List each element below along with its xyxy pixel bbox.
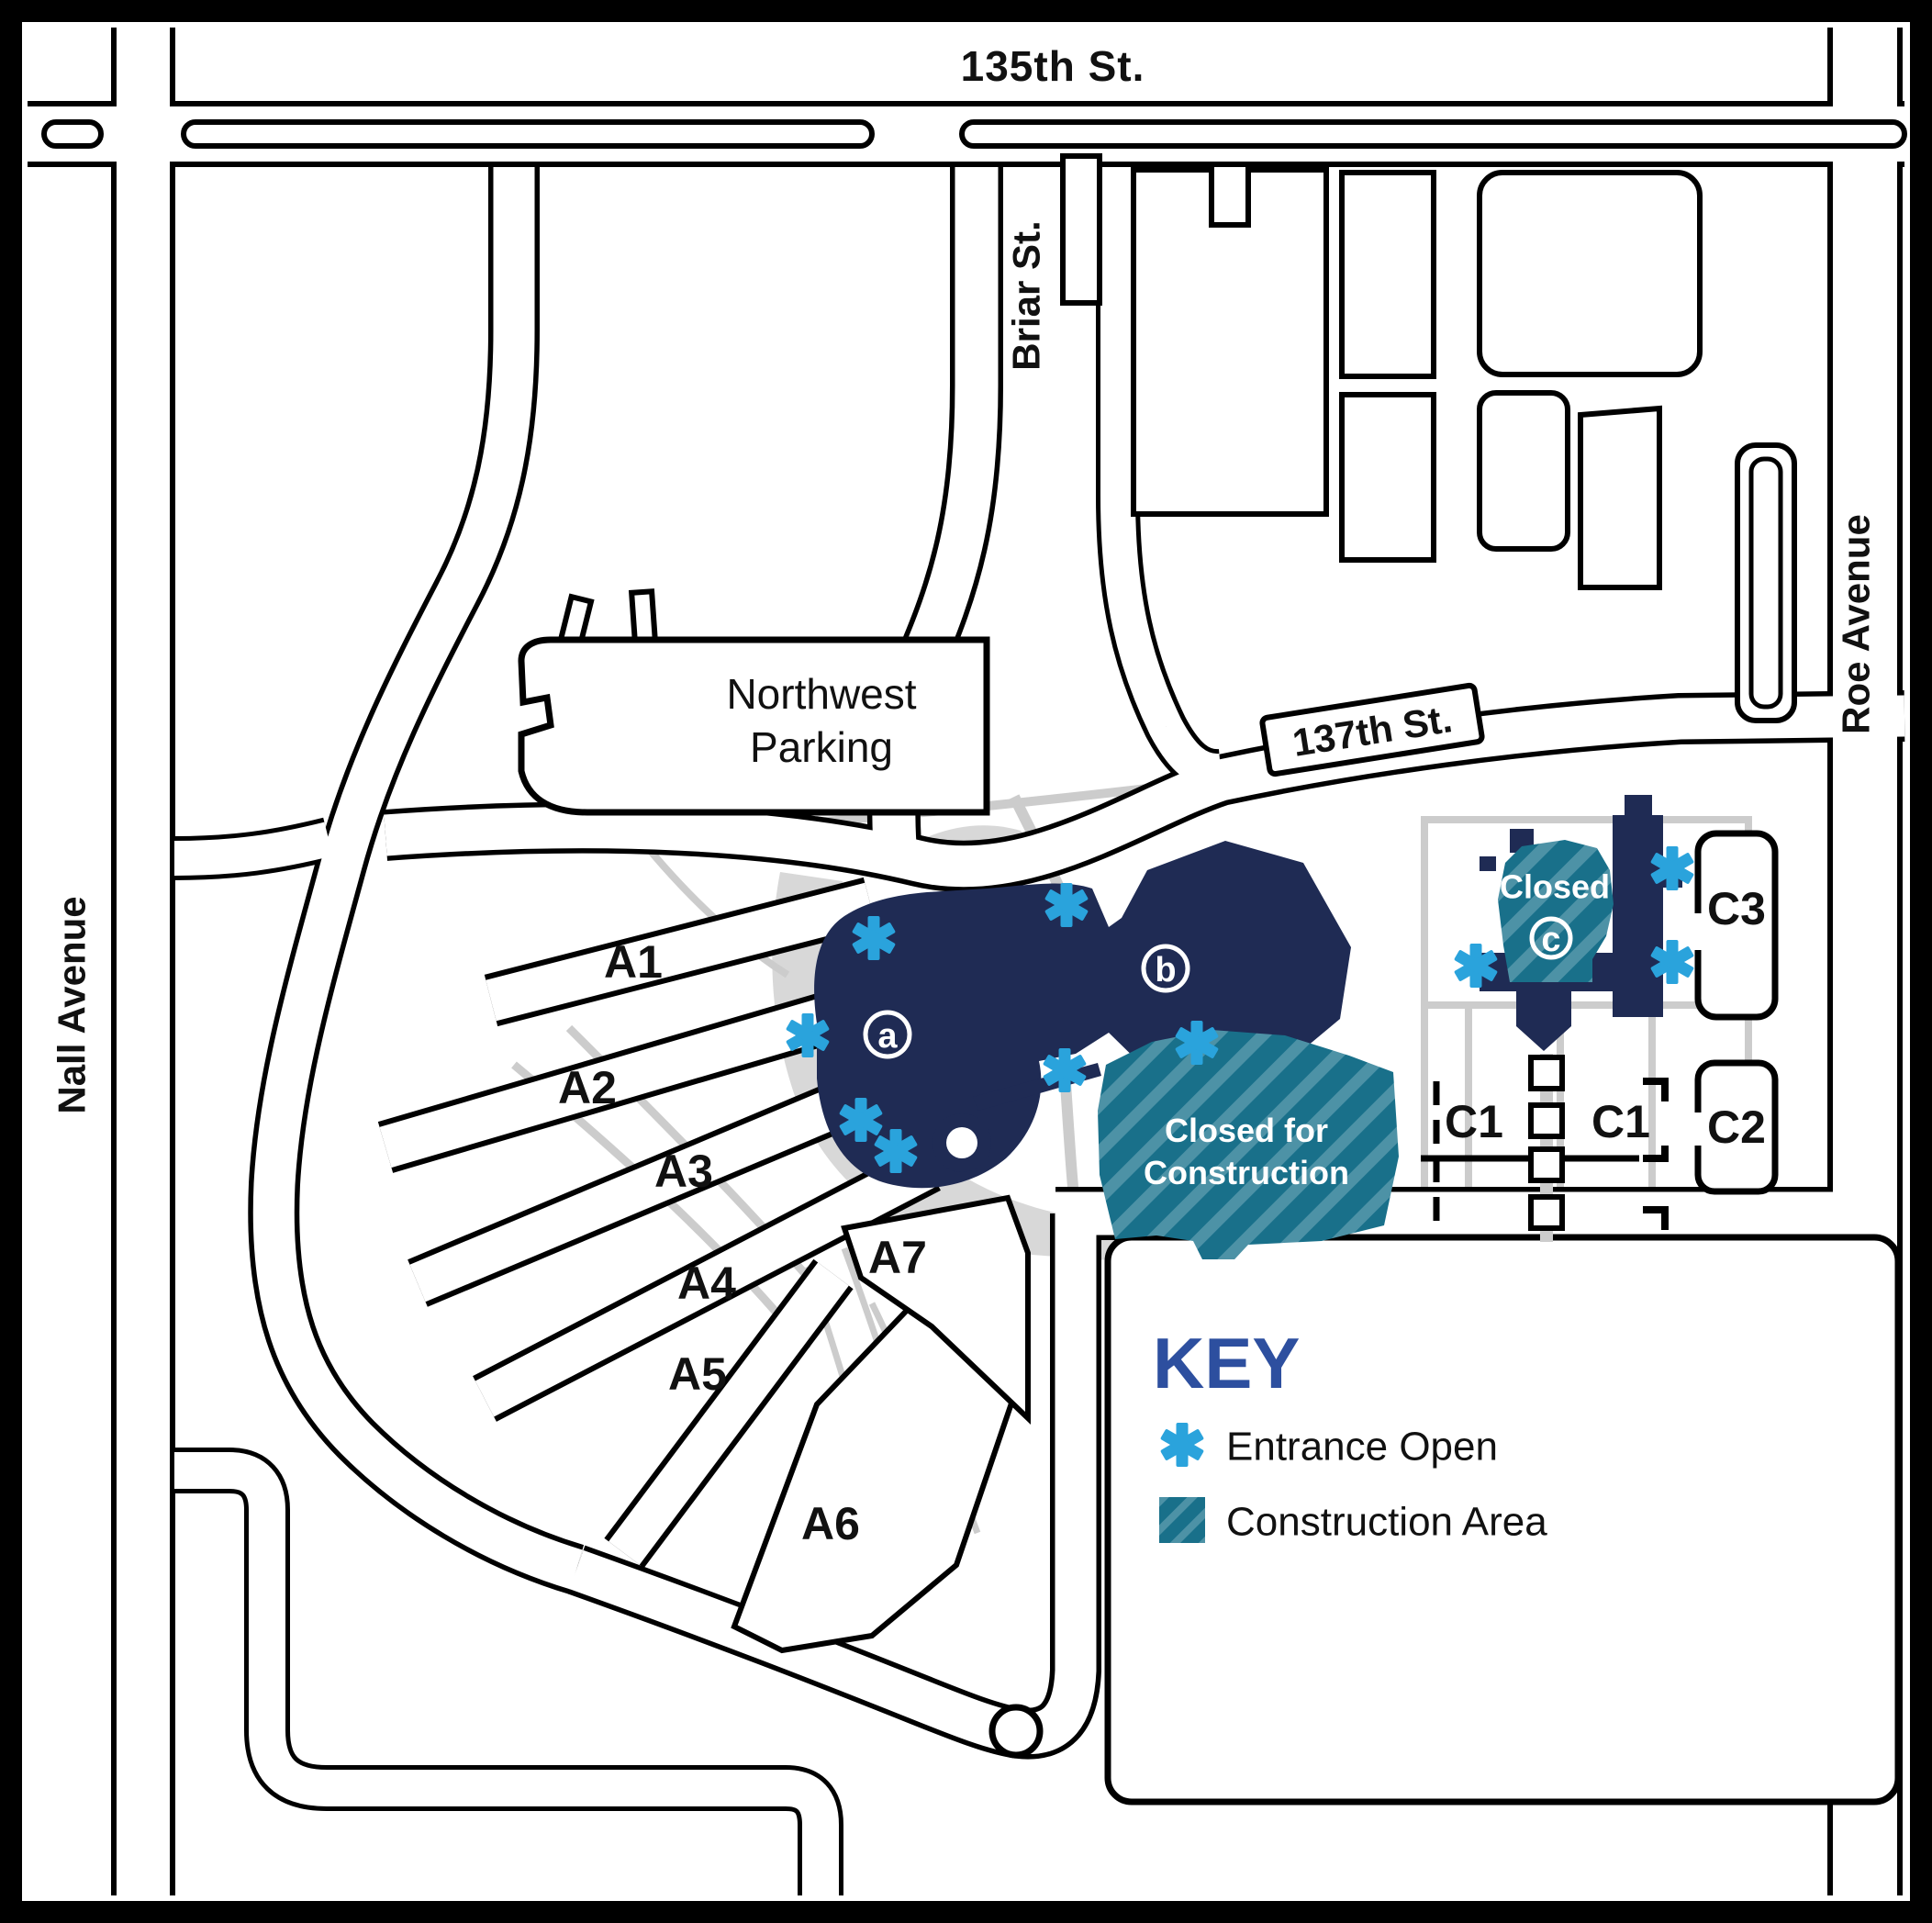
lot-c1-right-label: C1 [1591, 1096, 1650, 1147]
median-islands [44, 122, 1904, 146]
parcel-block-notched [1134, 170, 1326, 514]
building-c-letter: c [1541, 921, 1560, 959]
parcel-flag [1063, 156, 1100, 303]
lot-a2-label: A2 [558, 1062, 617, 1113]
lot-a3-label: A3 [654, 1146, 713, 1197]
legend-construction-label: Construction Area [1226, 1500, 1547, 1545]
street-135th-label: 135th St. [961, 42, 1145, 90]
northwest-parking-label-line2: Parking [750, 723, 893, 771]
lot-a6-label: A6 [801, 1498, 860, 1549]
c2-deck-gap [1692, 1112, 1704, 1146]
lot-c2-label: C2 [1707, 1101, 1766, 1153]
parcels [1063, 156, 1794, 721]
construction-swatch-icon [1159, 1497, 1205, 1543]
street-nall-label: Nall Avenue [50, 896, 94, 1113]
building-c-closed-label: Closed [1500, 868, 1610, 906]
legend-entrance-label: Entrance Open [1226, 1425, 1498, 1470]
north-parking-deck [1737, 445, 1794, 721]
street-roe-label: Roe Avenue [1835, 514, 1878, 734]
lot-c3-label: C3 [1707, 883, 1766, 934]
building-b-letter: b [1155, 951, 1176, 989]
lot-a5-label: A5 [668, 1348, 727, 1400]
construction-label-line2: Construction [1144, 1154, 1349, 1191]
lot-a4-label: A4 [677, 1258, 736, 1309]
lot-a1-label: A1 [604, 936, 663, 988]
lot-c1-left-label: C1 [1445, 1096, 1503, 1147]
northwest-parking-label-line1: Northwest [726, 670, 916, 718]
legend-heading: KEY [1153, 1323, 1300, 1403]
building-a-letter: a [877, 1017, 898, 1056]
cul-de-sac [992, 1707, 1040, 1755]
building-c-complex: Closed c [1480, 795, 1682, 1051]
street-briar-label: Briar St. [1005, 220, 1048, 370]
campus-map: Northwest Parking A1 A2 A3 A4 A5 A6 A7 [0, 0, 1932, 1923]
construction-label-line1: Closed for [1165, 1112, 1328, 1149]
c3-deck-gap [1692, 913, 1704, 950]
lot-a7-label: A7 [868, 1232, 927, 1283]
